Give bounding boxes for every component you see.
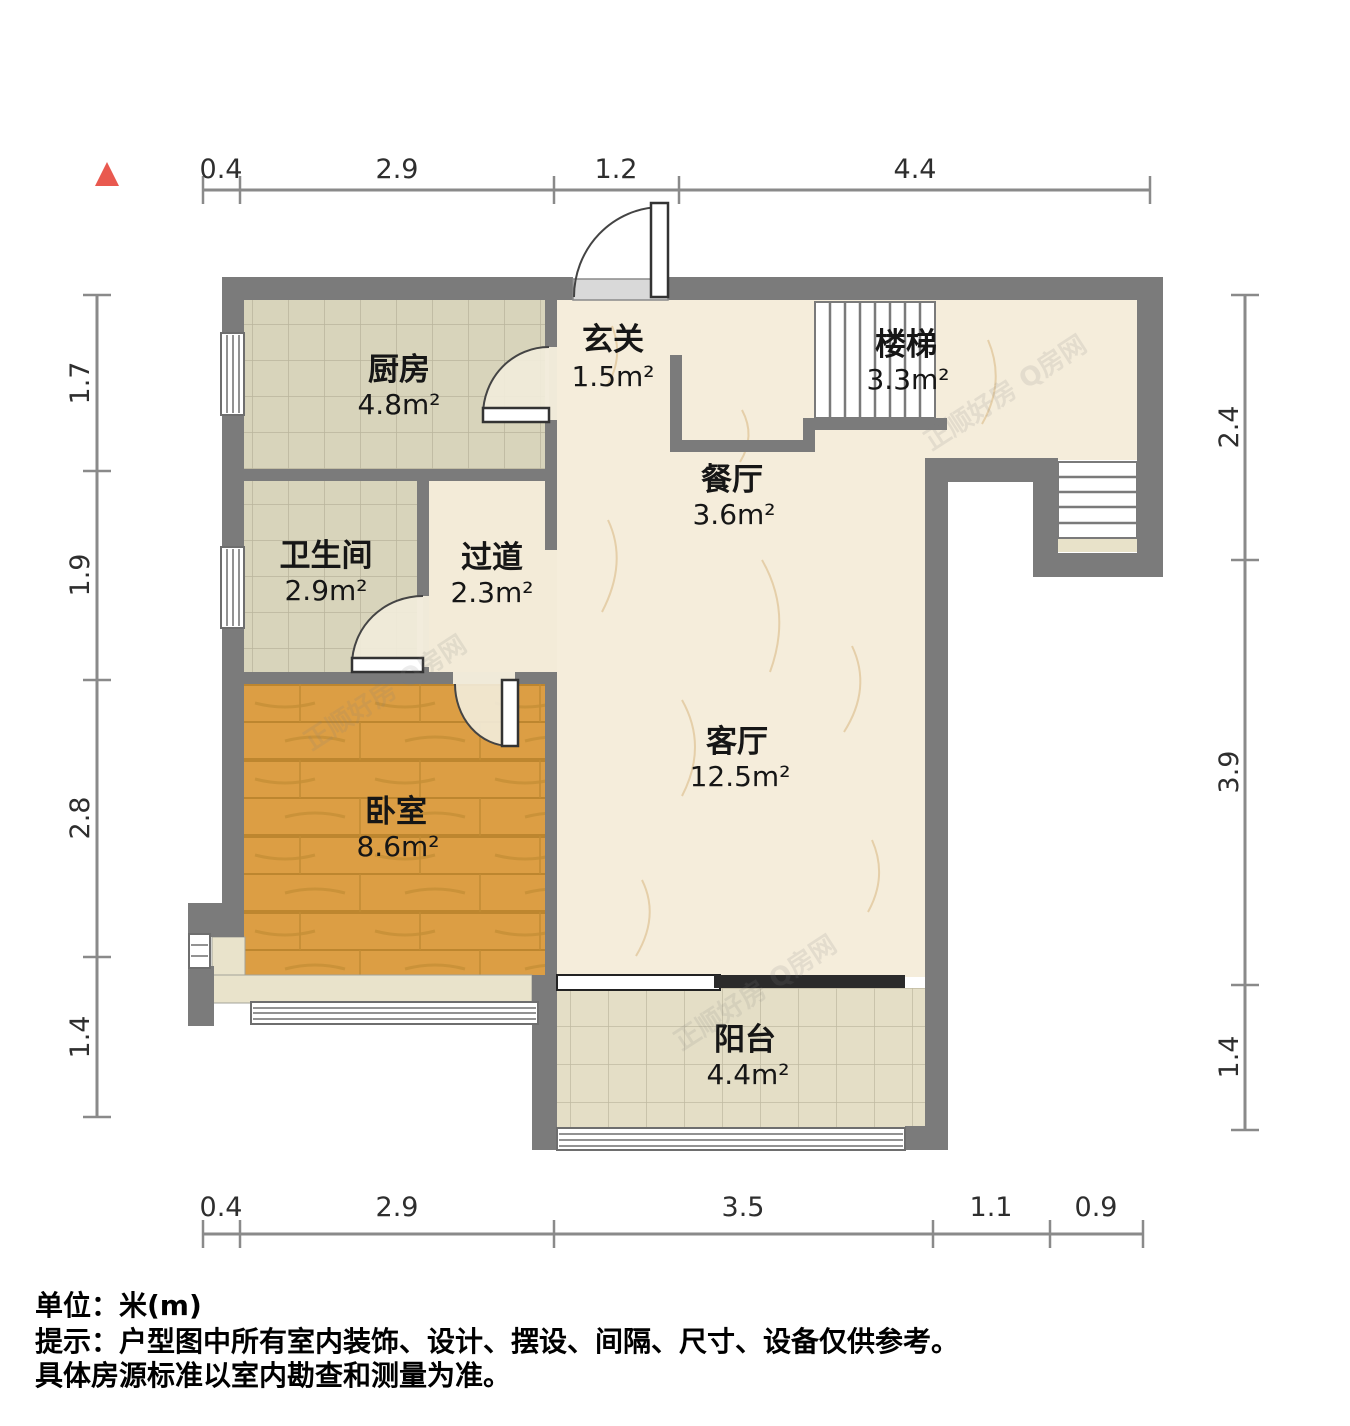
wall-hall-right: [545, 481, 557, 550]
bathroom-window: [221, 547, 244, 628]
balcony-window: [557, 1128, 905, 1150]
room-bathroom-label: 卫生间: [280, 538, 373, 574]
room-bathroom-area: 2.9m²: [284, 574, 367, 607]
wall-living-right: [925, 458, 948, 1150]
wall-stair-stub: [803, 418, 815, 452]
disclaimer-line2: 具体房源标准以室内勘查和测量为准。: [35, 1359, 511, 1392]
wall-bedroom-right: [545, 672, 557, 980]
dim-left-2: 1.9: [65, 554, 96, 597]
dim-top-2: 2.9: [376, 154, 419, 185]
room-living-label: 客厅: [706, 724, 768, 760]
wall-bay-protrusion-top: [188, 903, 244, 937]
disclaimer-line1: 提示：户型图中所有室内装饰、设计、摆设、间隔、尺寸、设备仅供参考。: [35, 1325, 959, 1358]
dimension-bottom: 0.4 2.9 3.5 1.1 0.9: [200, 1192, 1143, 1248]
room-living-area: 12.5m²: [690, 760, 791, 793]
wall-entry-divider-v: [670, 355, 682, 452]
wall-kitchen-bath-divider: [222, 469, 557, 481]
room-balcony-area: 4.4m²: [706, 1058, 789, 1091]
dim-top-4: 4.4: [894, 154, 937, 185]
room-hallway-area: 2.3m²: [450, 576, 533, 609]
room-bedroom-label: 卧室: [365, 794, 427, 830]
dimension-top: 0.4 2.9 1.2 4.4: [200, 154, 1150, 204]
kitchen-window: [221, 333, 244, 415]
living-floor: [557, 460, 925, 977]
bay-strip-bottom: [212, 975, 532, 1003]
wall-kitchen-right-lower: [545, 420, 557, 481]
dim-right-2: 3.9: [1214, 751, 1245, 794]
dim-bottom-1: 0.4: [200, 1192, 243, 1223]
floorplan-drawing: 厨房 4.8m² 玄关 1.5m² 楼梯 3.3m² 餐厅 3.6m² 卫生间 …: [0, 0, 1350, 1426]
footer-notes: 单位：米(m) 提示：户型图中所有室内装饰、设计、摆设、间隔、尺寸、设备仅供参考…: [35, 1289, 959, 1392]
staircase-steps-down: [1058, 462, 1137, 538]
dim-bottom-2: 2.9: [376, 1192, 419, 1223]
dim-bottom-3: 3.5: [722, 1192, 765, 1223]
room-bedroom-area: 8.6m²: [356, 830, 439, 863]
room-hallway-label: 过道: [461, 540, 523, 576]
dim-bottom-4: 1.1: [970, 1192, 1013, 1223]
dim-right-1: 2.4: [1214, 406, 1245, 449]
north-arrow-icon: [95, 162, 119, 186]
dim-left-4: 1.4: [65, 1016, 96, 1059]
dim-bottom-5: 0.9: [1075, 1192, 1118, 1223]
unit-note: 单位：米(m): [35, 1289, 202, 1322]
dim-left-1: 1.7: [65, 362, 96, 405]
wall-top-left: [222, 277, 573, 300]
wall-bath-hall-upper: [417, 481, 429, 596]
dim-left-3: 2.8: [65, 797, 96, 840]
wall-bedroom-top-right: [515, 672, 557, 684]
room-kitchen-label: 厨房: [368, 352, 430, 388]
dim-top-1: 0.4: [200, 154, 243, 185]
room-entry-area: 1.5m²: [571, 360, 654, 393]
wall-top-right: [668, 277, 1163, 300]
room-dining-label: 餐厅: [701, 462, 763, 498]
room-entry-label: 玄关: [582, 322, 644, 358]
room-kitchen-area: 4.8m²: [357, 388, 440, 421]
bedroom-bay-window: [251, 1002, 538, 1024]
wall-notch-right: [1033, 458, 1058, 577]
bay-side-window: [189, 934, 210, 968]
floorplan-page: 厨房 4.8m² 玄关 1.5m² 楼梯 3.3m² 餐厅 3.6m² 卫生间 …: [0, 0, 1350, 1426]
dim-right-3: 1.4: [1214, 1036, 1245, 1079]
wall-balcony-corner: [905, 1126, 948, 1150]
dim-top-3: 1.2: [595, 154, 638, 185]
wall-bay-protrusion-side: [188, 966, 214, 1026]
wall-entry-divider-h: [670, 440, 815, 452]
wall-right-upper: [1137, 277, 1163, 577]
wall-kitchen-right-upper: [545, 298, 557, 347]
dimension-left: 1.7 1.9 2.8 1.4: [65, 295, 111, 1117]
dimension-right: 2.4 3.9 1.4: [1214, 295, 1259, 1130]
sliding-door: [557, 975, 905, 990]
stair-bottom-landing: [1058, 538, 1137, 552]
room-stairs-label: 楼梯: [875, 327, 937, 363]
room-dining-area: 3.6m²: [692, 498, 775, 531]
room-stairs-area: 3.3m²: [866, 363, 949, 396]
